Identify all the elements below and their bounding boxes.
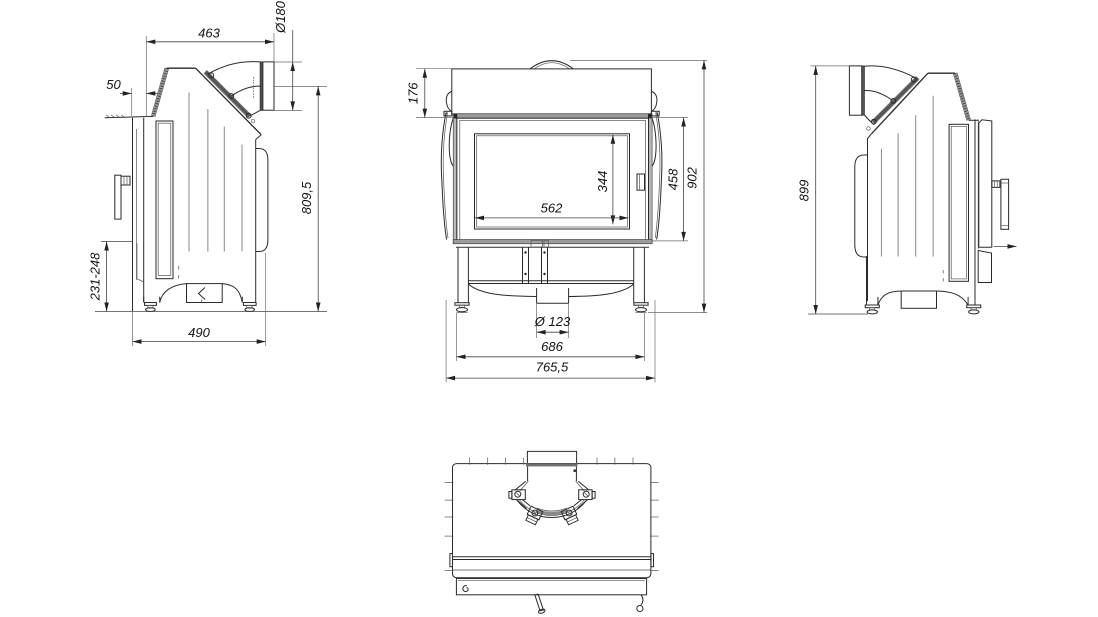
svg-text:176: 176 [406, 82, 421, 104]
svg-text:Ø180: Ø180 [273, 0, 288, 34]
svg-text:50: 50 [106, 77, 121, 92]
svg-text:344: 344 [595, 171, 610, 193]
svg-text:686: 686 [541, 339, 563, 354]
svg-text:231-248: 231-248 [88, 252, 103, 301]
svg-text:Ø 123: Ø 123 [534, 314, 571, 329]
svg-text:902: 902 [685, 166, 700, 188]
svg-text:463: 463 [198, 26, 220, 41]
svg-text:899: 899 [797, 180, 812, 202]
svg-text:765,5: 765,5 [536, 360, 569, 375]
svg-text:490: 490 [188, 325, 210, 340]
svg-text:809,5: 809,5 [299, 181, 314, 214]
svg-text:458: 458 [666, 168, 681, 190]
svg-text:562: 562 [541, 201, 563, 216]
